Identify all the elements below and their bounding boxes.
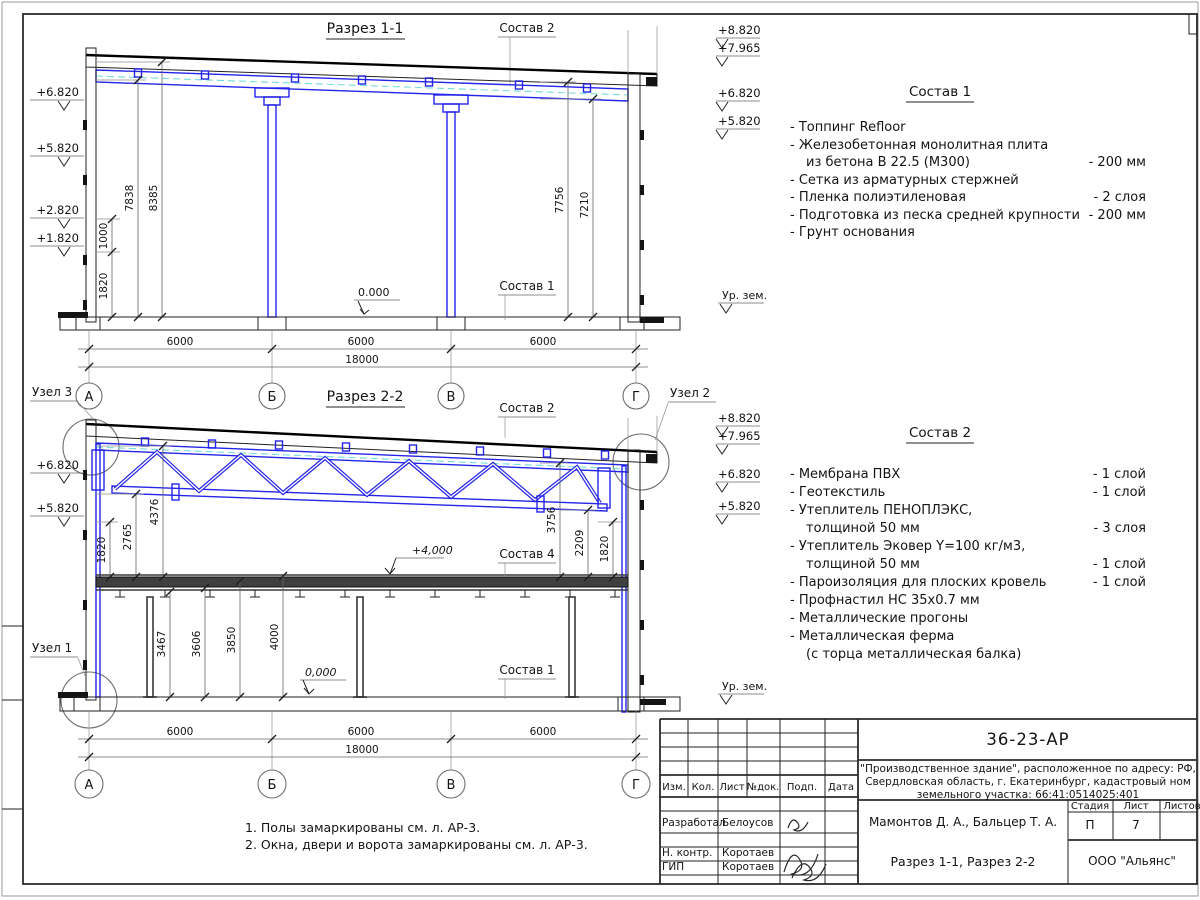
stage-value: П bbox=[1085, 818, 1094, 832]
svg-text:(с торца металлическая балка): (с торца металлическая балка) bbox=[806, 647, 1021, 662]
row-nkontr: Н. контр. bbox=[662, 847, 712, 859]
section1-columns bbox=[255, 88, 468, 317]
svg-text:3606: 3606 bbox=[191, 630, 203, 657]
col-data: Дата bbox=[828, 782, 854, 793]
project-line1: "Производственное здание", расположенное… bbox=[860, 763, 1196, 775]
section2-title: Разрез 2-2 bbox=[327, 389, 404, 405]
section1-elevations-left: +6.820 +5.820 +2.820 +1.820 bbox=[30, 85, 84, 256]
svg-text:толщиной 50 мм: толщиной 50 мм bbox=[806, 521, 920, 536]
svg-text:3756: 3756 bbox=[546, 506, 558, 533]
section2-sostav4-label: Состав 4 bbox=[499, 547, 554, 561]
svg-text:- Мембрана ПВХ: - Мембрана ПВХ bbox=[790, 467, 900, 482]
svg-text:- Металлическая ферма: - Металлическая ферма bbox=[790, 629, 954, 644]
section2-below-dims: 3467 3606 3850 4000 bbox=[156, 572, 287, 701]
svg-text:+6.820: +6.820 bbox=[718, 86, 761, 100]
svg-text:1820: 1820 bbox=[96, 537, 108, 564]
axis-bubble-g2: Г bbox=[632, 778, 640, 793]
svg-text:- 3 слоя: - 3 слоя bbox=[1094, 521, 1146, 536]
svg-text:+5.820: +5.820 bbox=[718, 114, 761, 128]
sheets-label: Листов bbox=[1163, 801, 1200, 812]
svg-text:- Железобетонная монолитная п: - Железобетонная монолитная плита bbox=[790, 138, 1048, 153]
svg-text:+2.820: +2.820 bbox=[36, 203, 79, 217]
svg-text:толщиной 50 мм: толщиной 50 мм bbox=[806, 557, 920, 572]
axis-bubble-v2: В bbox=[447, 778, 456, 793]
section2-zero-mark: 0,000 bbox=[305, 666, 337, 679]
axis-bubble-g: Г bbox=[632, 390, 640, 405]
section1-elevations-right: +8.820 +7.965 +6.820 +5.820 Ур. зем. bbox=[716, 23, 767, 313]
svg-text:18000: 18000 bbox=[345, 744, 378, 756]
section1-floor bbox=[60, 317, 680, 330]
section1-left-wall bbox=[86, 48, 96, 322]
section2-roof bbox=[86, 424, 657, 463]
svg-text:3850: 3850 bbox=[226, 627, 238, 654]
corner-box bbox=[1189, 14, 1197, 34]
svg-text:- 1 слой: - 1 слой bbox=[1093, 575, 1146, 590]
uzel1-label: Узел 1 bbox=[32, 641, 72, 655]
svg-text:6000: 6000 bbox=[167, 726, 194, 738]
section1-sostav1-label: Состав 1 bbox=[499, 279, 554, 293]
section-1: Разрез 1-1 Состав 2 bbox=[30, 21, 767, 409]
svg-text:+6.820: +6.820 bbox=[718, 467, 761, 481]
svg-text:- Геотекстиль: - Геотекстиль bbox=[790, 485, 885, 500]
svg-text:1820: 1820 bbox=[98, 273, 110, 300]
drawing-title: Разрез 1-1, Разрез 2-2 bbox=[891, 854, 1036, 869]
uzel3-label: Узел 3 bbox=[32, 385, 72, 399]
doc-number: 36-23-АР bbox=[986, 730, 1069, 749]
sostav2-list: Состав 2 - Мембрана ПВХ - 1 слой - Геоте… bbox=[790, 425, 1146, 662]
row-gip: ГИП bbox=[662, 861, 684, 873]
svg-text:7838: 7838 bbox=[124, 185, 136, 212]
drawing-sheet: Разрез 1-1 Состав 2 bbox=[0, 0, 1200, 900]
svg-text:- 200 мм: - 200 мм bbox=[1089, 155, 1146, 170]
svg-text:- Металлические прогоны: - Металлические прогоны bbox=[790, 611, 968, 626]
svg-text:8385: 8385 bbox=[148, 185, 160, 212]
svg-text:6000: 6000 bbox=[530, 726, 557, 738]
section1-roof-beam bbox=[96, 69, 628, 101]
row-gip-name: Коротаев bbox=[722, 861, 774, 873]
sostav1-list: Состав 1 - Топпинг Refloor - Железобетон… bbox=[790, 84, 1146, 240]
svg-text:3467: 3467 bbox=[156, 631, 168, 658]
sheet-label: Лист bbox=[1123, 801, 1149, 812]
svg-text:+5.820: +5.820 bbox=[718, 499, 761, 513]
svg-text:- Подготовка из песка средней: - Подготовка из песка средней крупности bbox=[790, 208, 1080, 223]
sostav1-title: Состав 1 bbox=[909, 84, 971, 100]
col-ndok: №док. bbox=[747, 782, 780, 793]
svg-text:- Топпинг Refloor: - Топпинг Refloor bbox=[790, 120, 906, 135]
notes: 1. Полы замаркированы см. л. АР-3. 2. Ок… bbox=[245, 820, 588, 852]
project-line2: Свердловская область, г. Екатеринбург, к… bbox=[865, 776, 1191, 788]
row-razrabotal-name: Белоусов bbox=[722, 817, 773, 829]
svg-text:- 2 слоя: - 2 слоя bbox=[1094, 190, 1146, 205]
svg-text:6000: 6000 bbox=[348, 726, 375, 738]
svg-text:18000: 18000 bbox=[345, 354, 378, 366]
svg-text:- Утеплитель Эковер Y=100 кг/м: - Утеплитель Эковер Y=100 кг/м3, bbox=[790, 539, 1025, 554]
svg-text:из бетона В 22.5 (М300): из бетона В 22.5 (М300) bbox=[806, 155, 970, 170]
svg-text:1820: 1820 bbox=[599, 536, 611, 563]
section1-sostav2-label: Состав 2 bbox=[499, 21, 554, 35]
svg-text:+6.820: +6.820 bbox=[36, 458, 79, 472]
row-nkontr-name: Коротаев bbox=[722, 847, 774, 859]
note-1: 1. Полы замаркированы см. л. АР-3. bbox=[245, 820, 480, 835]
svg-text:4000: 4000 bbox=[269, 624, 281, 651]
sostav2-title: Состав 2 bbox=[909, 425, 971, 441]
svg-text:- Пленка полиэтиленовая: - Пленка полиэтиленовая bbox=[790, 190, 966, 205]
svg-text:+5.820: +5.820 bbox=[36, 501, 79, 515]
section2-elevations-right: +8.820 +7.965 +6.820 +5.820 Ур. зем. bbox=[716, 411, 767, 704]
col-izm: Изм. bbox=[662, 782, 686, 793]
section2-sostav2-label: Состав 2 bbox=[499, 401, 554, 415]
svg-text:- 1 слой: - 1 слой bbox=[1093, 557, 1146, 572]
axis-bubble-b2: Б bbox=[268, 778, 277, 793]
section2-ground-label: Ур. зем. bbox=[722, 680, 767, 693]
col-list: Лист bbox=[719, 782, 745, 793]
svg-text:6000: 6000 bbox=[348, 336, 375, 348]
svg-text:- Утеплитель ПЕНОПЛЭКС,: - Утеплитель ПЕНОПЛЭКС, bbox=[790, 503, 972, 518]
title-block: Изм. Кол. Лист №док. Подп. Дата Разработ… bbox=[660, 719, 1200, 884]
uzel2-label: Узел 2 bbox=[670, 386, 710, 400]
note-2: 2. Окна, двери и ворота замаркированы см… bbox=[245, 837, 588, 852]
svg-text:2765: 2765 bbox=[122, 524, 134, 551]
stage-label: Стадия bbox=[1071, 801, 1109, 812]
svg-text:+7.965: +7.965 bbox=[718, 429, 761, 443]
section-2: Разрез 2-2 Состав 2 Узел 3 Узел 2 Узел 1 bbox=[30, 385, 767, 798]
svg-text:6000: 6000 bbox=[530, 336, 557, 348]
svg-text:- Профнастил НС 35х0.7 мм: - Профнастил НС 35х0.7 мм bbox=[790, 593, 980, 608]
section2-elevations-left: +6.820 +5.820 bbox=[30, 458, 84, 526]
axis-bubble-v: В bbox=[447, 390, 456, 405]
svg-text:7756: 7756 bbox=[554, 186, 566, 213]
sheet-value: 7 bbox=[1132, 818, 1140, 832]
section1-zero-mark: 0.000 bbox=[358, 286, 390, 299]
axis-bubble-a2: А bbox=[85, 778, 94, 793]
section1-ground-label: Ур. зем. bbox=[722, 289, 767, 302]
col-kol: Кол. bbox=[692, 782, 715, 793]
project-line3: земельного участка: 66:41:0514025:401 bbox=[917, 789, 1139, 801]
svg-text:4376: 4376 bbox=[149, 498, 161, 525]
svg-text:- Грунт основания: - Грунт основания bbox=[790, 225, 915, 240]
svg-text:+6.820: +6.820 bbox=[36, 85, 79, 99]
svg-text:2209: 2209 bbox=[574, 530, 586, 557]
axis-bubble-b: Б bbox=[268, 390, 277, 405]
section1-title: Разрез 1-1 bbox=[327, 21, 404, 37]
svg-text:+8.820: +8.820 bbox=[718, 23, 761, 37]
svg-text:+1.820: +1.820 bbox=[36, 231, 79, 245]
cad-canvas: Разрез 1-1 Состав 2 bbox=[0, 0, 1200, 900]
section2-sostav1-label: Состав 1 bbox=[499, 663, 554, 677]
svg-text:+7.965: +7.965 bbox=[718, 41, 761, 55]
section2-bottom-dims: 6000 6000 6000 18000 А Б В Г bbox=[75, 711, 650, 798]
col-podp: Подп. bbox=[787, 782, 817, 793]
svg-text:+5.820: +5.820 bbox=[36, 141, 79, 155]
row-razrabotal: Разработал bbox=[662, 817, 726, 829]
svg-text:7210: 7210 bbox=[579, 192, 591, 219]
svg-text:- 200 мм: - 200 мм bbox=[1089, 208, 1146, 223]
svg-text:- 1 слой: - 1 слой bbox=[1093, 485, 1146, 500]
section2-floor bbox=[60, 697, 680, 711]
section1-right-wall bbox=[628, 74, 640, 322]
svg-text:1000: 1000 bbox=[98, 223, 110, 250]
signature-1 bbox=[788, 820, 808, 831]
section2-plus4-mark: +4,000 bbox=[412, 544, 453, 557]
authors: Мамонтов Д. А., Бальцер Т. А. bbox=[869, 815, 1057, 829]
svg-text:+8.820: +8.820 bbox=[718, 411, 761, 425]
svg-text:- Сетка из арматурных стержней: - Сетка из арматурных стержней bbox=[790, 173, 1019, 188]
svg-text:6000: 6000 bbox=[167, 336, 194, 348]
svg-text:- 1 слой: - 1 слой bbox=[1093, 467, 1146, 482]
svg-text:- Пароизоляция для плоских кро: - Пароизоляция для плоских кровель bbox=[790, 575, 1046, 590]
axis-bubble-a: А bbox=[85, 390, 94, 405]
company: ООО "Альянс" bbox=[1088, 854, 1176, 868]
